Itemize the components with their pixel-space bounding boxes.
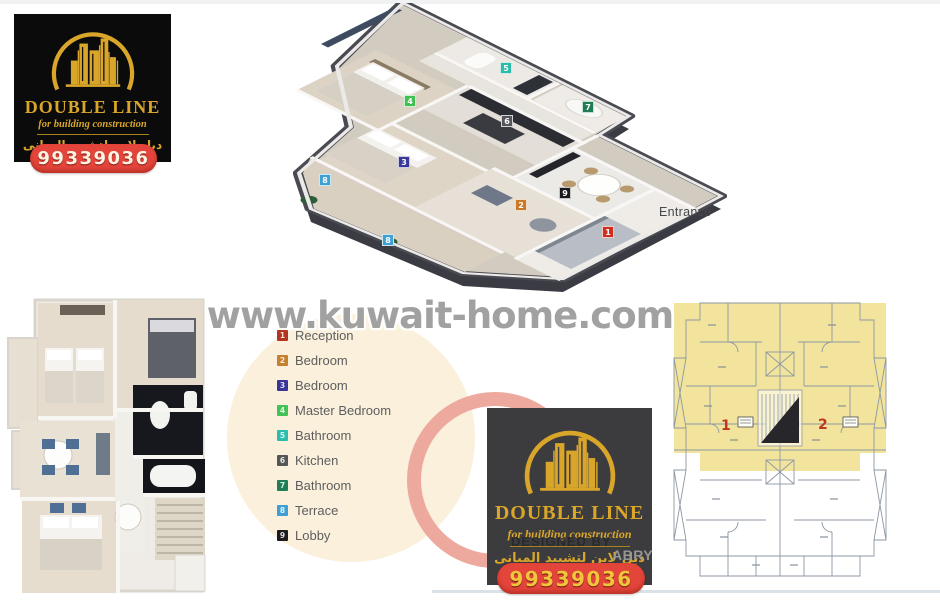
legend-item-terrace: 8 Terrace <box>277 504 391 517</box>
legend-swatch-kitchen: 6 <box>277 455 288 466</box>
designer-credit-line: DESIGNED BY <box>511 534 612 549</box>
blueprint-floor-plan <box>670 294 890 590</box>
company-name: DOUBLE LINE <box>495 502 644 525</box>
top-down-floor-plan <box>0 293 240 600</box>
logo-divider <box>37 134 149 135</box>
legend-swatch-reception: 1 <box>277 330 288 341</box>
legend-swatch-lobby: 9 <box>277 530 288 541</box>
buildings-emblem-icon <box>42 19 144 97</box>
legend-label: Bedroom <box>295 353 348 368</box>
legend-label: Terrace <box>295 503 338 518</box>
isometric-floor-plan <box>293 3 727 295</box>
room-legend: 1 Reception 2 Bedroom 3 Bedroom 4 Master… <box>277 329 391 554</box>
phone-number-badge: 99339036 <box>497 563 645 594</box>
room-marker-terrace: 8 <box>319 174 331 186</box>
legend-item-bathroom-2: 7 Bathroom <box>277 479 391 492</box>
legend-label: Reception <box>295 328 354 343</box>
legend-label: Bathroom <box>295 428 351 443</box>
legend-label: Master Bedroom <box>295 403 391 418</box>
legend-swatch-bedroom-2: 3 <box>277 380 288 391</box>
room-marker-reception: 1 <box>602 226 614 238</box>
flyer-canvas: DOUBLE LINE for building construction دب… <box>0 0 940 600</box>
legend-label: Bathroom <box>295 478 351 493</box>
room-marker-bedroom2: 2 <box>515 199 527 211</box>
legend-item-lobby: 9 Lobby <box>277 529 391 542</box>
room-marker-bathroom5: 5 <box>500 62 512 74</box>
legend-item-kitchen: 6 Kitchen <box>277 454 391 467</box>
room-marker-bedroom3: 3 <box>398 156 410 168</box>
company-tagline: for building construction <box>38 119 147 130</box>
legend-swatch-master-bedroom: 4 <box>277 405 288 416</box>
designer-name-watermark: ABRY <box>612 547 653 563</box>
legend-item-bedroom-2: 3 Bedroom <box>277 379 391 392</box>
room-marker-master-bedroom: 4 <box>404 95 416 107</box>
legend-swatch-bedroom: 2 <box>277 355 288 366</box>
legend-item-bathroom: 5 Bathroom <box>277 429 391 442</box>
legend-item-master-bedroom: 4 Master Bedroom <box>277 404 391 417</box>
website-watermark: www.kuwait-home.com <box>175 294 705 337</box>
room-marker-bathroom7: 7 <box>582 101 594 113</box>
apartment-footprint <box>293 3 727 295</box>
legend-label: Kitchen <box>295 453 338 468</box>
legend-item-bedroom: 2 Bedroom <box>277 354 391 367</box>
legend-label: Bedroom <box>295 378 348 393</box>
unit-number-1: 1 <box>721 418 731 434</box>
legend-swatch-bathroom-2: 7 <box>277 480 288 491</box>
legend-item-reception: 1 Reception <box>277 329 391 342</box>
company-logo-top: DOUBLE LINE for building construction دب… <box>14 14 171 162</box>
buildings-emblem-icon <box>514 416 626 502</box>
legend-swatch-bathroom: 5 <box>277 430 288 441</box>
company-name: DOUBLE LINE <box>25 97 161 118</box>
room-marker-kitchen: 6 <box>501 115 513 127</box>
legend-swatch-terrace: 8 <box>277 505 288 516</box>
unit-number-2: 2 <box>818 417 828 433</box>
entrance-label: Entrance <box>659 205 711 219</box>
phone-number-badge: 99339036 <box>30 144 157 173</box>
room-marker-lobby: 9 <box>559 187 571 199</box>
legend-label: Lobby <box>295 528 330 543</box>
room-marker-terrace-2: 8 <box>382 234 394 246</box>
